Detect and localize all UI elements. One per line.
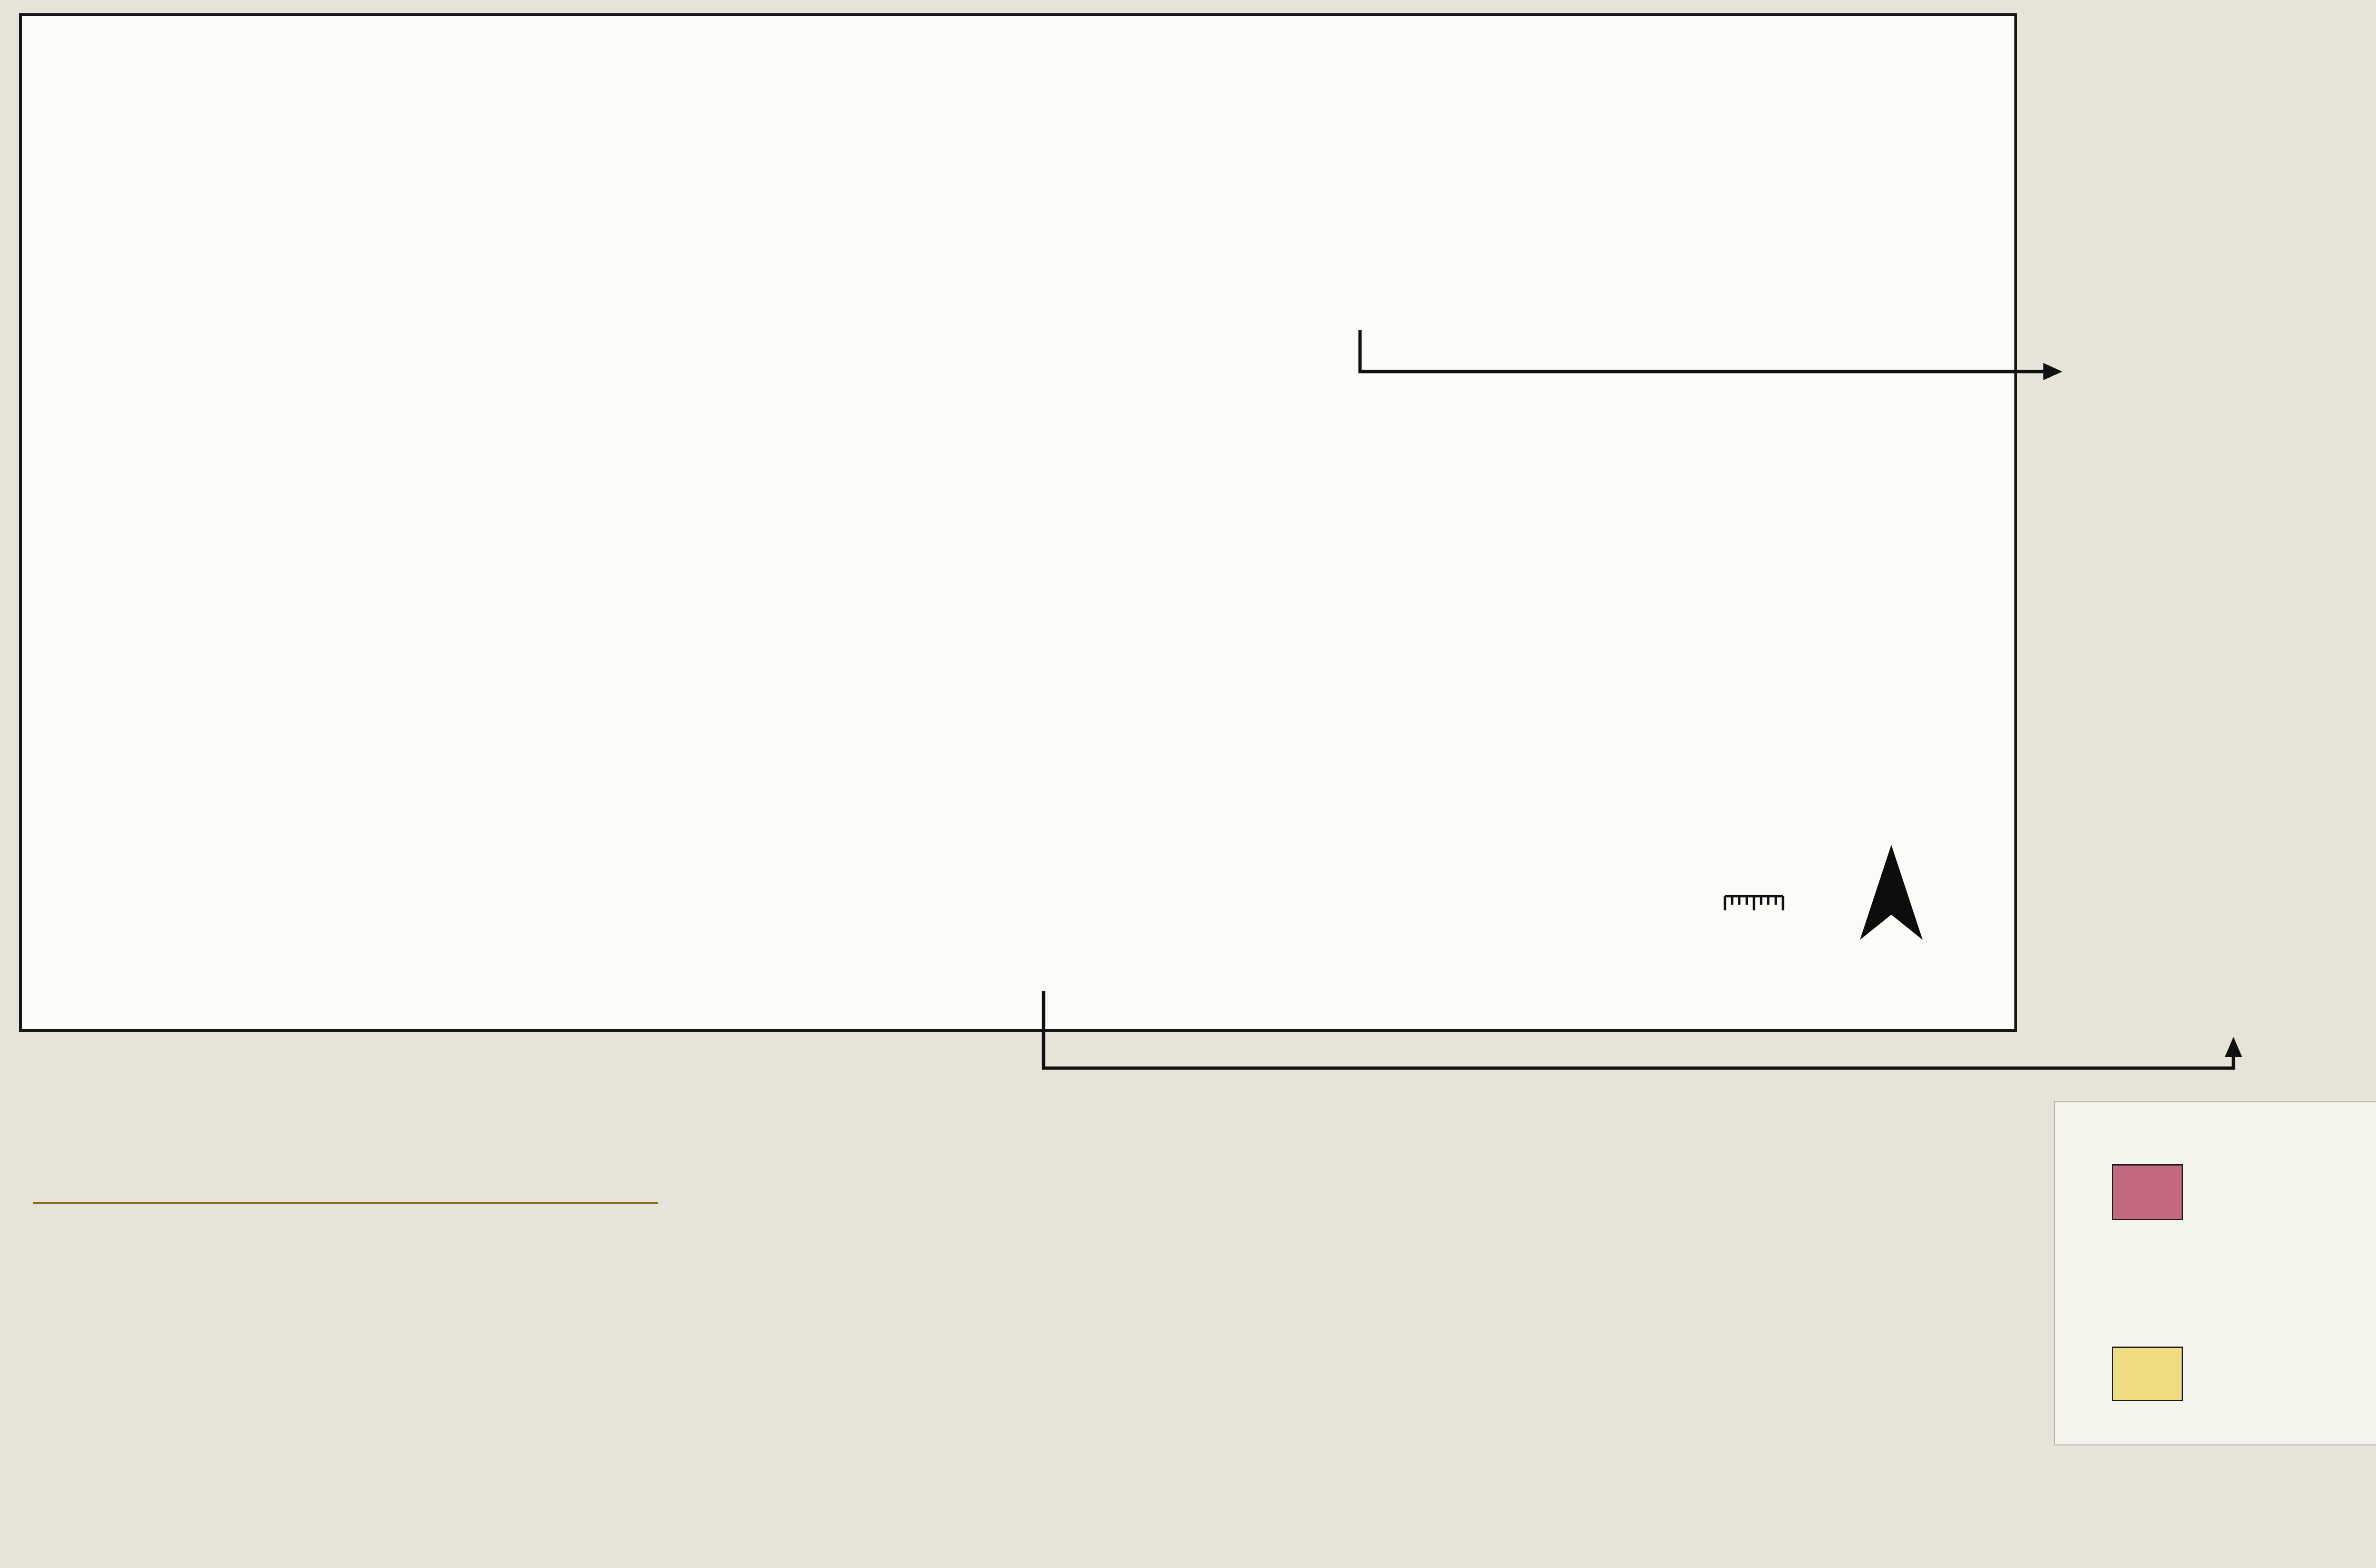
legend-brick-swatch [2112, 1164, 2183, 1220]
legend-frame-swatch [2112, 1347, 2183, 1401]
main-map [19, 13, 2017, 1032]
poster-page [0, 0, 2376, 1568]
title-underline [33, 1202, 658, 1204]
legend [2054, 1101, 2376, 1445]
